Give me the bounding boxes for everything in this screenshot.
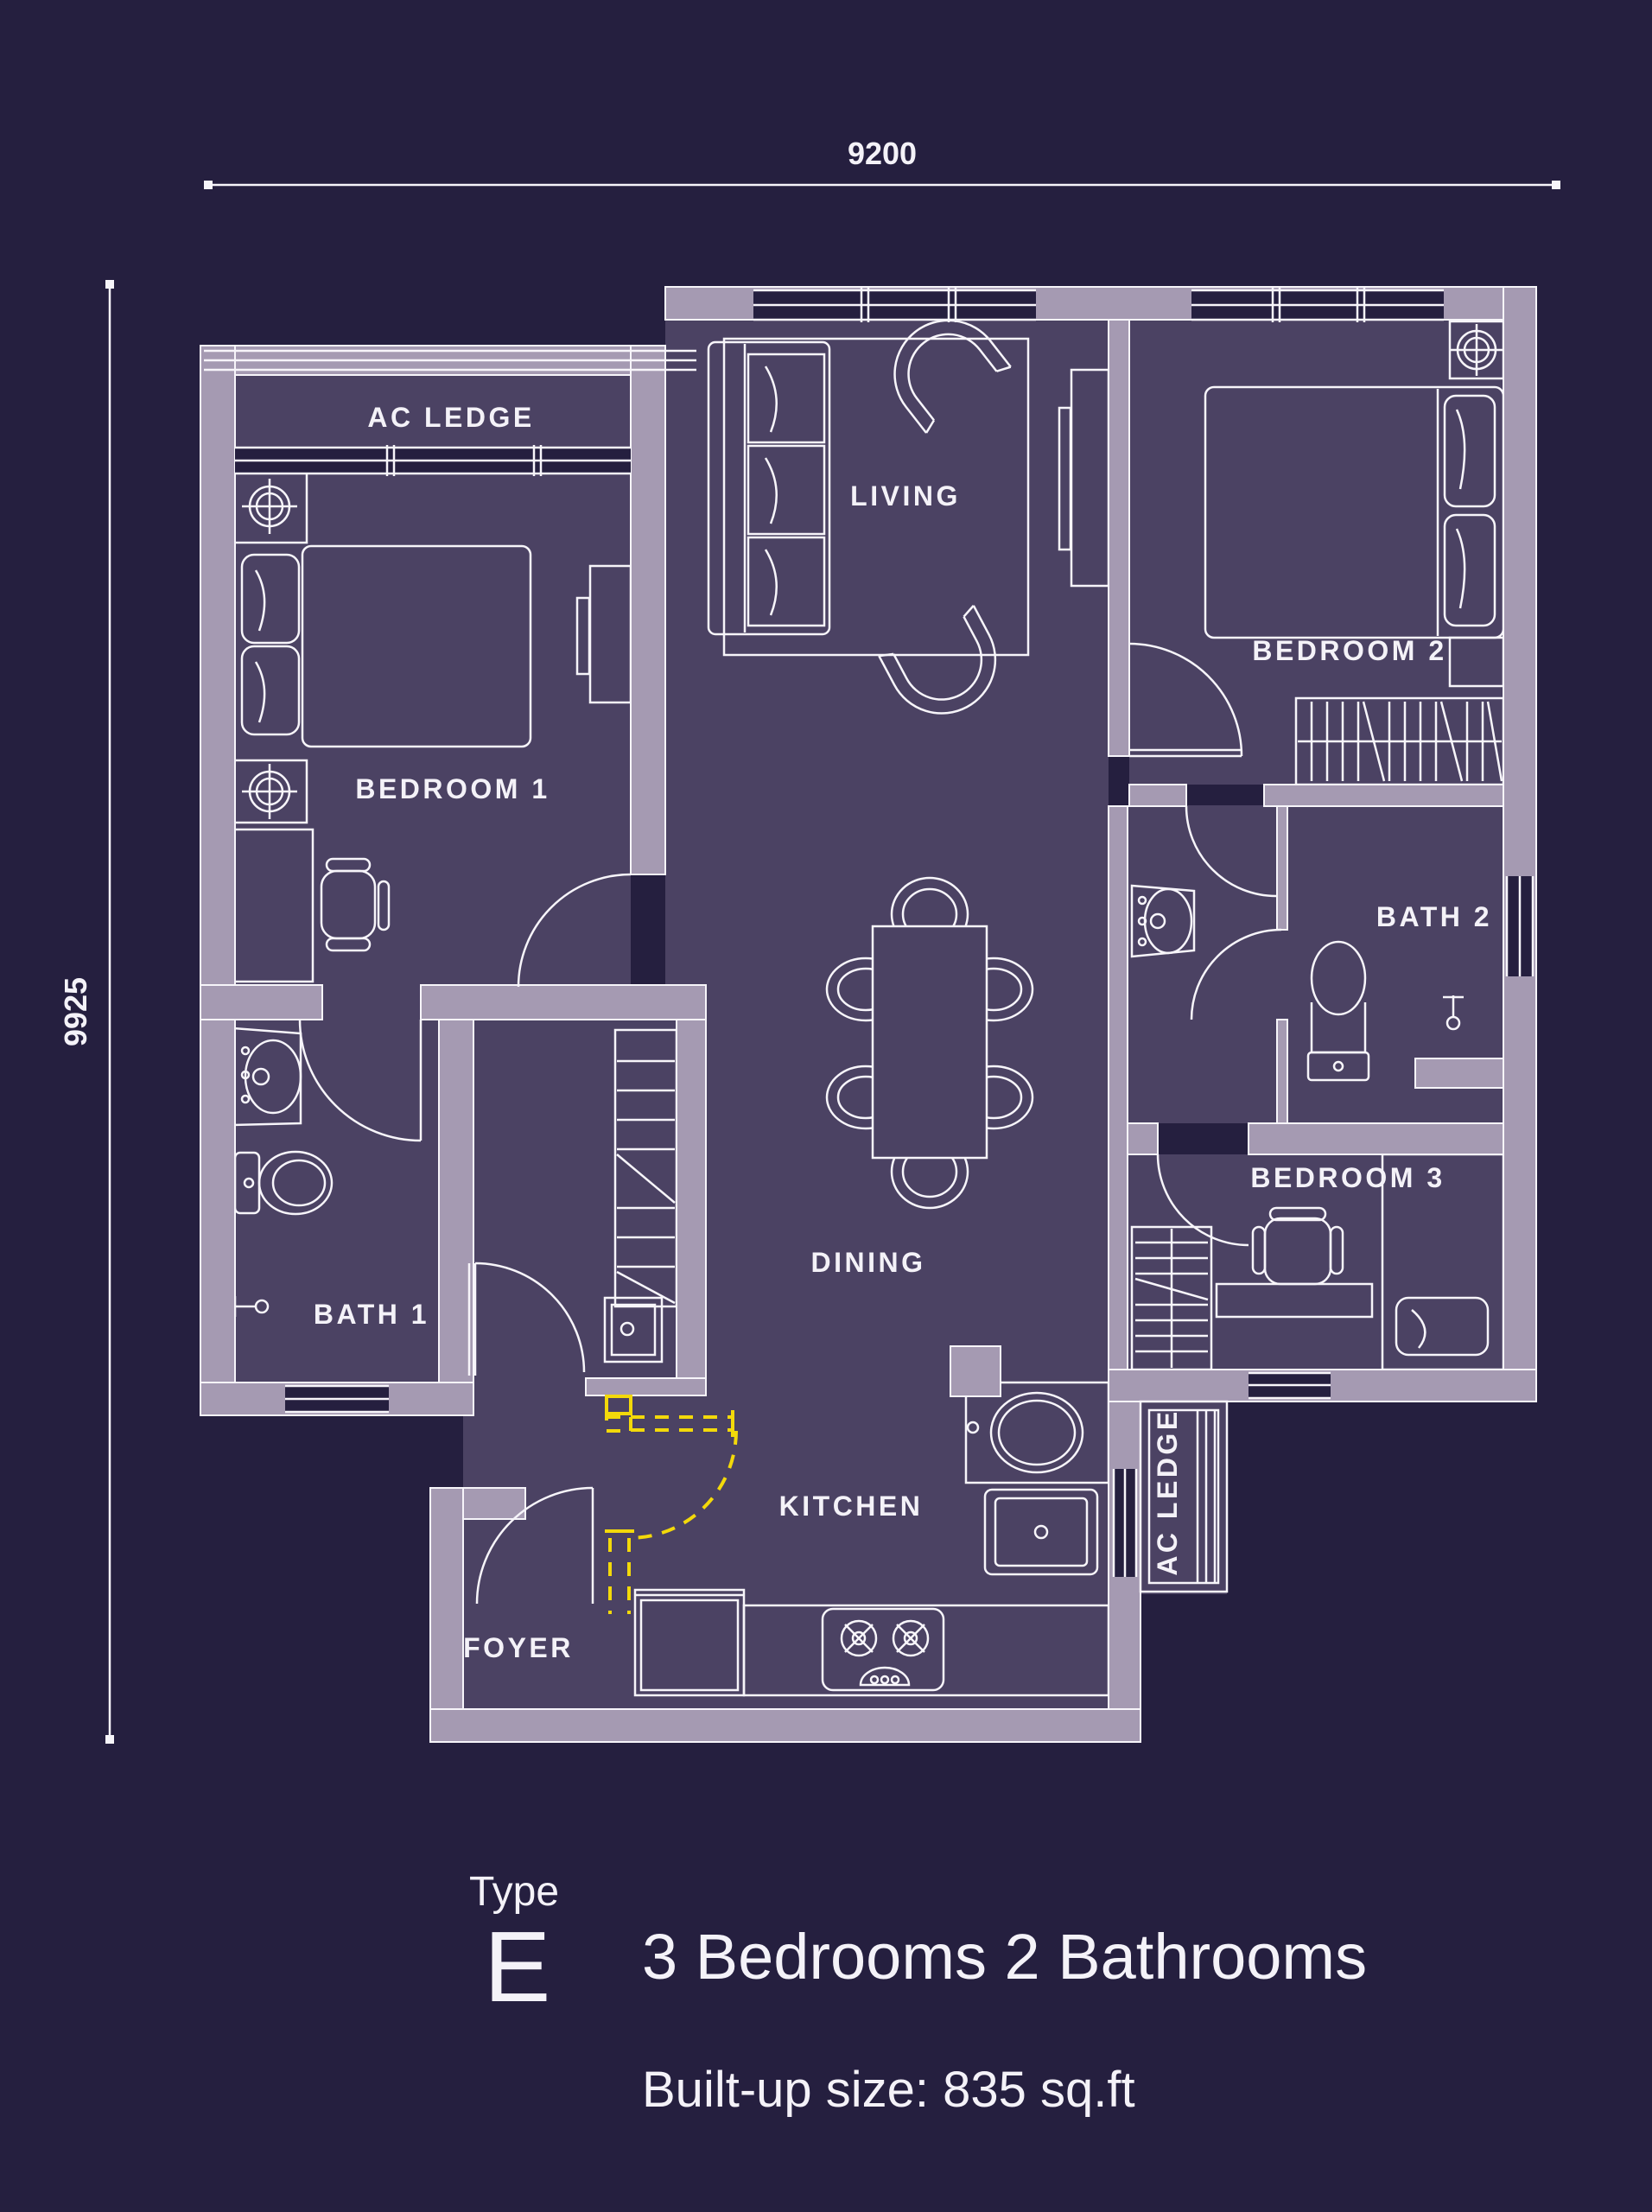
dimension-left: 9925 <box>58 280 114 1744</box>
legend-type-value: E <box>484 1910 550 2023</box>
window-bath1 <box>285 1386 389 1412</box>
legend-type-label: Type <box>469 1869 559 1915</box>
label-ac-ledge-right: AC LEDGE <box>1152 1408 1183 1575</box>
window-kitchen <box>1114 1469 1136 1577</box>
window-ac-ledge <box>235 445 631 476</box>
label-dining: DINING <box>811 1247 926 1278</box>
window-bath2 <box>1507 876 1533 976</box>
label-bath1: BATH 1 <box>314 1299 429 1330</box>
label-kitchen: KITCHEN <box>779 1491 924 1522</box>
legend: Type E 3 Bedrooms 2 Bathrooms Built-up s… <box>469 1869 1367 2118</box>
legend-subtitle: Built-up size: 835 sq.ft <box>642 2062 1135 2118</box>
label-bedroom2: BEDROOM 2 <box>1252 635 1446 666</box>
dimension-height-value: 9925 <box>58 977 93 1046</box>
label-foyer: FOYER <box>463 1632 574 1663</box>
dimension-top: 9200 <box>204 136 1560 189</box>
legend-title: 3 Bedrooms 2 Bathrooms <box>642 1921 1367 1993</box>
label-bedroom1: BEDROOM 1 <box>355 773 550 804</box>
dining-table <box>873 926 987 1158</box>
floor-plan-canvas: AC LEDGE BEDROOM 1 LIVING BEDROOM 2 BATH… <box>0 0 1652 2212</box>
window-living <box>753 288 1036 322</box>
label-ac-ledge-top: AC LEDGE <box>367 402 534 433</box>
dimension-width-value: 9200 <box>848 136 917 171</box>
label-bedroom3: BEDROOM 3 <box>1250 1162 1445 1193</box>
window-bedroom2 <box>1191 288 1444 322</box>
label-living: LIVING <box>850 480 961 512</box>
label-bath2: BATH 2 <box>1376 901 1492 932</box>
window-bedroom3 <box>1249 1373 1331 1398</box>
